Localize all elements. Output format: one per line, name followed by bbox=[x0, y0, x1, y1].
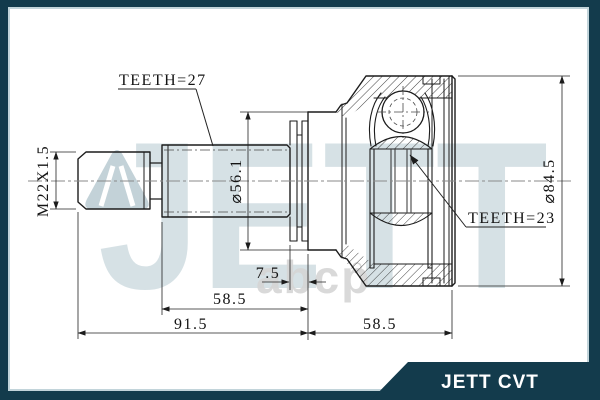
label-thread-spec: M22X1.5 bbox=[35, 145, 52, 217]
label-housing-diameter: ⌀84.5 bbox=[541, 158, 558, 203]
brand-banner: JETT CVT bbox=[371, 362, 600, 400]
dim-boot-groove-width: 7.5 bbox=[256, 265, 281, 282]
banner-label: JETT CVT bbox=[441, 372, 539, 393]
cv-joint-drawing-page: JETT abcp bbox=[0, 0, 600, 400]
dim-spline-to-face-length: 58.5 bbox=[213, 291, 247, 308]
cv-joint-technical-drawing: JETT abcp bbox=[0, 0, 600, 400]
dim-shaft-overall-length: 91.5 bbox=[174, 316, 208, 333]
label-spline-neck-diameter: ⌀56.1 bbox=[228, 158, 245, 203]
label-teeth-inner: TEETH=23 bbox=[468, 210, 556, 227]
label-teeth-outer: TEETH=27 bbox=[119, 72, 207, 89]
dim-housing-length: 58.5 bbox=[363, 316, 397, 333]
